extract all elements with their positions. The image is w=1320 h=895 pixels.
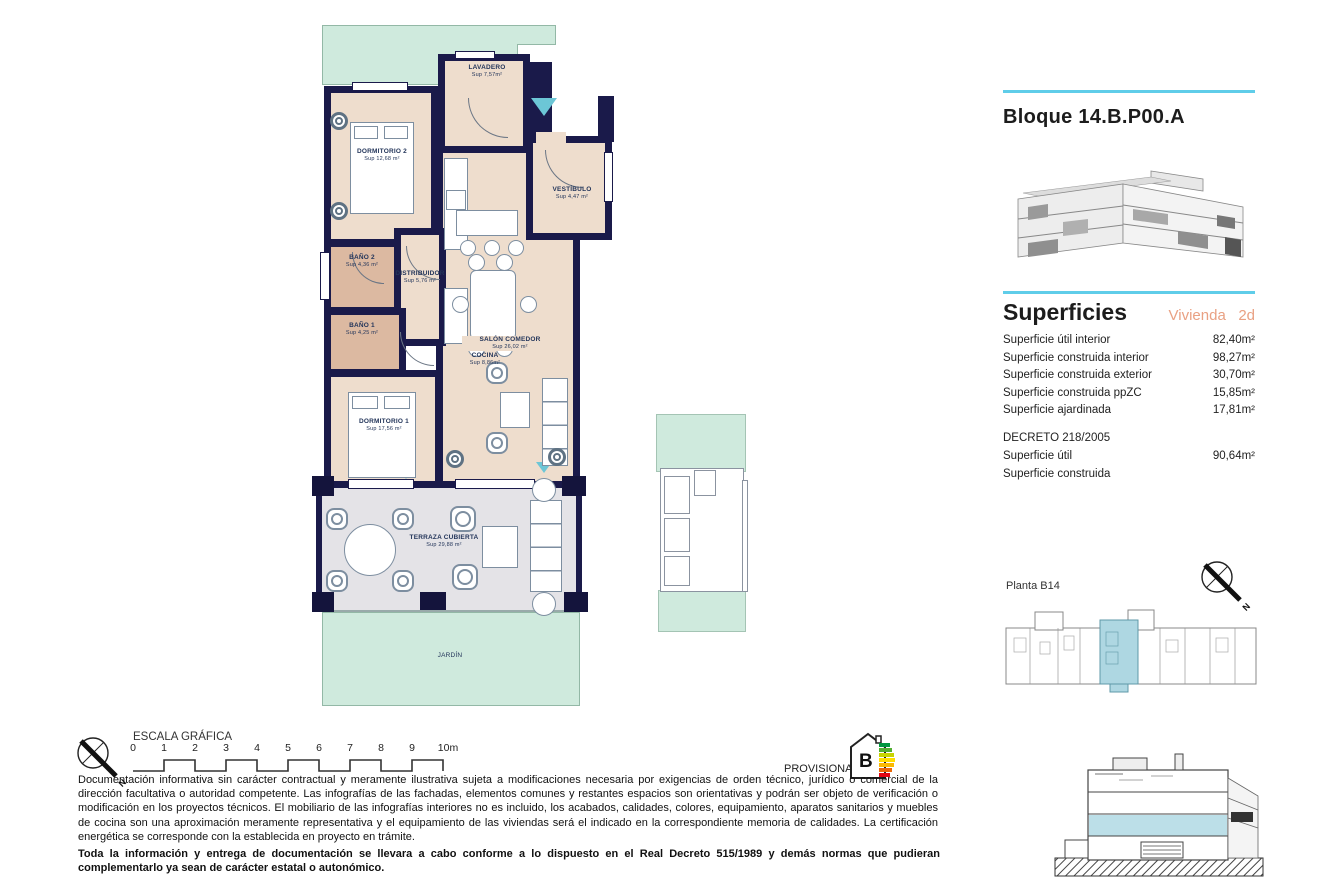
legal-paragraph-2: Toda la información y entrega de documen… xyxy=(78,847,940,875)
dining-chair xyxy=(468,254,485,271)
section-elevation xyxy=(1053,752,1265,882)
pillow xyxy=(352,396,378,409)
label-bano-1: BAÑO 1 Sup 4,25 m² xyxy=(332,322,392,337)
keyplan-drawing xyxy=(1000,598,1262,694)
adjacent-room xyxy=(664,518,690,552)
label-vestibulo: VESTÍBULO Sup 4,47 m² xyxy=(538,186,606,201)
armchair xyxy=(486,432,508,454)
pillow xyxy=(384,126,408,139)
window xyxy=(455,51,495,59)
terrace-chair xyxy=(392,570,414,592)
kitchen-island xyxy=(456,210,518,236)
terrace-chair xyxy=(326,570,348,592)
light-symbol xyxy=(330,112,348,130)
table-row: Superficie construida ppZC15,85m² xyxy=(1003,387,1255,405)
window xyxy=(352,82,408,91)
light-symbol xyxy=(548,448,566,466)
adjacent-balcony-line xyxy=(742,480,748,592)
light-symbol xyxy=(330,202,348,220)
garden-top xyxy=(322,25,556,45)
terrace-table xyxy=(344,524,396,576)
superficies-header: Superficies Vivienda 2d xyxy=(1003,299,1255,326)
label-salon-comedor: SALÓN COMEDOR Sup 26,02 m² xyxy=(462,336,558,351)
table-row: Superficie ajardinada17,81m² xyxy=(1003,404,1255,422)
adjacent-room xyxy=(664,556,690,586)
entry-arrow-icon xyxy=(531,98,557,116)
adjacent-room xyxy=(694,470,716,496)
table-row: Superficie útil90,64m² xyxy=(1003,450,1255,468)
window xyxy=(320,252,330,300)
divider-top xyxy=(1003,90,1255,93)
dining-chair xyxy=(452,296,469,313)
coffee-table xyxy=(500,392,530,428)
pillow xyxy=(384,396,410,409)
terrace-sofa xyxy=(530,500,562,592)
terrace-pouf xyxy=(532,478,556,502)
table-row: Superficie útil interior82,40m² xyxy=(1003,334,1255,352)
building-render xyxy=(1003,165,1255,273)
scale-tick-labels: 0 1 2 3 4 5 6 7 8 9 10m xyxy=(130,742,470,754)
pillar xyxy=(564,592,588,612)
decreto-block: DECRETO 218/2005 Superficie útil90,64m² … xyxy=(1003,432,1255,485)
pillar xyxy=(420,592,446,610)
terrace-chair xyxy=(326,508,348,530)
light-symbol xyxy=(446,450,464,468)
terrace-chair xyxy=(392,508,414,530)
label-jardin: JARDÍN xyxy=(410,652,490,660)
stool xyxy=(508,240,524,256)
label-bano-2: BAÑO 2 Sup 4,36 m² xyxy=(332,254,392,269)
pillow xyxy=(354,126,378,139)
decreto-heading: DECRETO 218/2005 xyxy=(1003,432,1255,450)
divider-superficies xyxy=(1003,291,1255,294)
keyplan-label: Planta B14 xyxy=(1006,580,1060,592)
superficies-table: Superficie útil interior82,40m² Superfic… xyxy=(1003,334,1255,422)
pillar xyxy=(312,476,334,496)
table-row: Superficie construida exterior30,70m² xyxy=(1003,369,1255,387)
scale-bar xyxy=(130,755,470,775)
label-terraza: TERRAZA CUBIERTA Sup 29,88 m² xyxy=(396,534,492,549)
svg-text:B: B xyxy=(859,751,873,772)
pillar xyxy=(562,476,586,496)
dining-chair xyxy=(496,254,513,271)
terrace-armchair xyxy=(452,564,478,590)
kitchen-appliance xyxy=(446,190,466,210)
room-bano-1 xyxy=(324,308,406,376)
entrance-opening xyxy=(536,132,566,143)
adjacent-garden-bottom xyxy=(658,590,746,632)
page-title: Bloque 14.B.P00.A xyxy=(1003,106,1185,129)
label-dormitorio-2: DORMITORIO 2 Sup 12,68 m² xyxy=(334,148,430,163)
terrace-pouf xyxy=(532,592,556,616)
stool xyxy=(484,240,500,256)
table-row: Superficie construida interior98,27m² xyxy=(1003,352,1255,370)
pillar xyxy=(312,592,334,612)
legal-paragraph-1: Documentación informativa sin carácter c… xyxy=(78,773,938,844)
label-cocina: COCINA Sup 8,86m² xyxy=(452,352,518,367)
dining-chair xyxy=(520,296,537,313)
label-dormitorio-1: DORMITORIO 1 Sup 17,56 m² xyxy=(336,418,432,433)
window xyxy=(348,479,414,489)
adjacent-room xyxy=(664,476,690,514)
dining-table xyxy=(470,270,516,340)
terrace-armchair xyxy=(450,506,476,532)
table-row: Superficie construida xyxy=(1003,468,1255,486)
brochure-page: DORMITORIO 2 Sup 12,68 m² LAVADERO Sup 7… xyxy=(0,0,1320,895)
label-lavadero: LAVADERO Sup 7,57m² xyxy=(452,64,522,79)
label-distribuidor: DISTRIBUIDOR Sup 5,76 m² xyxy=(388,270,452,285)
superficies-heading: Superficies xyxy=(1003,299,1127,326)
vivienda-tag: Vivienda 2d xyxy=(1169,307,1255,324)
window xyxy=(455,479,535,489)
adjacent-garden-top xyxy=(656,414,746,472)
